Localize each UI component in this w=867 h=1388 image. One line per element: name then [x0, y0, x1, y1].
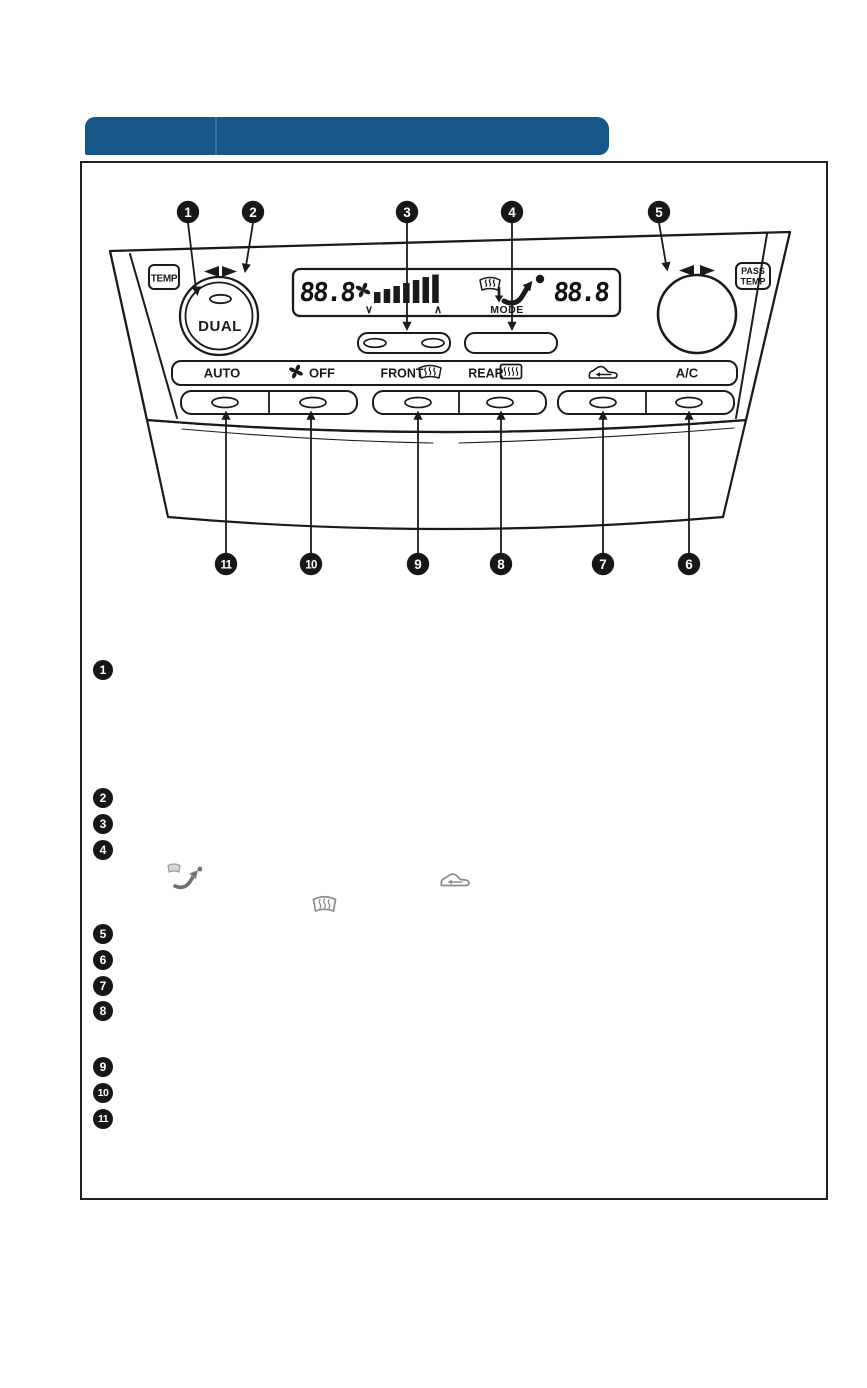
header-bar-seam: [215, 117, 217, 155]
legend-marker-10: 10: [93, 1083, 113, 1103]
legend-marker-11: 11: [93, 1109, 113, 1129]
callout-4: 4: [508, 205, 516, 220]
fan-down-chevron: ∨: [365, 304, 373, 316]
callout-11: 11: [221, 559, 233, 571]
recirculation-icon: [438, 870, 472, 891]
callout-2: 2: [249, 205, 257, 220]
front-defrost-icon: [311, 894, 338, 915]
legend-marker-1: 1: [93, 660, 113, 680]
legend-marker-6: 6: [93, 950, 113, 970]
passenger-temp-readout: 88.8: [552, 278, 611, 308]
climate-control-diagram: TEMP DUAL 88.8: [80, 161, 828, 631]
panel-lower-skirt: [147, 420, 746, 529]
callout-markers-top: 1 2 3 4 5: [177, 201, 670, 223]
callout-markers-bottom: 11 10 9 8 7 6: [215, 553, 700, 575]
manual-page: TEMP DUAL 88.8: [0, 0, 867, 1388]
rear-defogger-label: REAR: [468, 367, 503, 381]
dual-knob-label: DUAL: [198, 318, 242, 335]
callout-9: 9: [414, 557, 422, 572]
mode-label: MODE: [490, 304, 524, 316]
legend-marker-2: 2: [93, 788, 113, 808]
airflow-mode-arrow-icon: [166, 862, 202, 892]
callout-1: 1: [184, 205, 192, 220]
passenger-temp-badge-line2: TEMP: [740, 277, 765, 287]
callout-8: 8: [497, 557, 505, 572]
driver-temp-badge-label: TEMP: [151, 274, 178, 285]
passenger-temp-badge-line1: PASS: [741, 266, 765, 276]
legend-marker-5: 5: [93, 924, 113, 944]
fan-up-chevron: ∧: [434, 304, 442, 316]
legend-marker-8: 8: [93, 1001, 113, 1021]
driver-temp-readout: 88.8: [298, 278, 357, 308]
front-defogger-label: FRONT: [380, 367, 423, 381]
legend-marker-3: 3: [93, 814, 113, 834]
callout-5: 5: [655, 205, 663, 220]
section-header-bar: [85, 117, 609, 155]
auto-label: AUTO: [204, 366, 241, 381]
callout-6: 6: [685, 557, 693, 572]
callout-3: 3: [403, 205, 411, 220]
callout-10: 10: [305, 559, 317, 571]
legend-marker-9: 9: [93, 1057, 113, 1077]
legend-marker-4: 4: [93, 840, 113, 860]
legend-marker-7: 7: [93, 976, 113, 996]
ac-label: A/C: [676, 366, 699, 381]
callout-7: 7: [599, 557, 607, 572]
passenger-temp-badge: PASS TEMP: [736, 263, 770, 289]
fan-off-label: OFF: [309, 366, 335, 381]
